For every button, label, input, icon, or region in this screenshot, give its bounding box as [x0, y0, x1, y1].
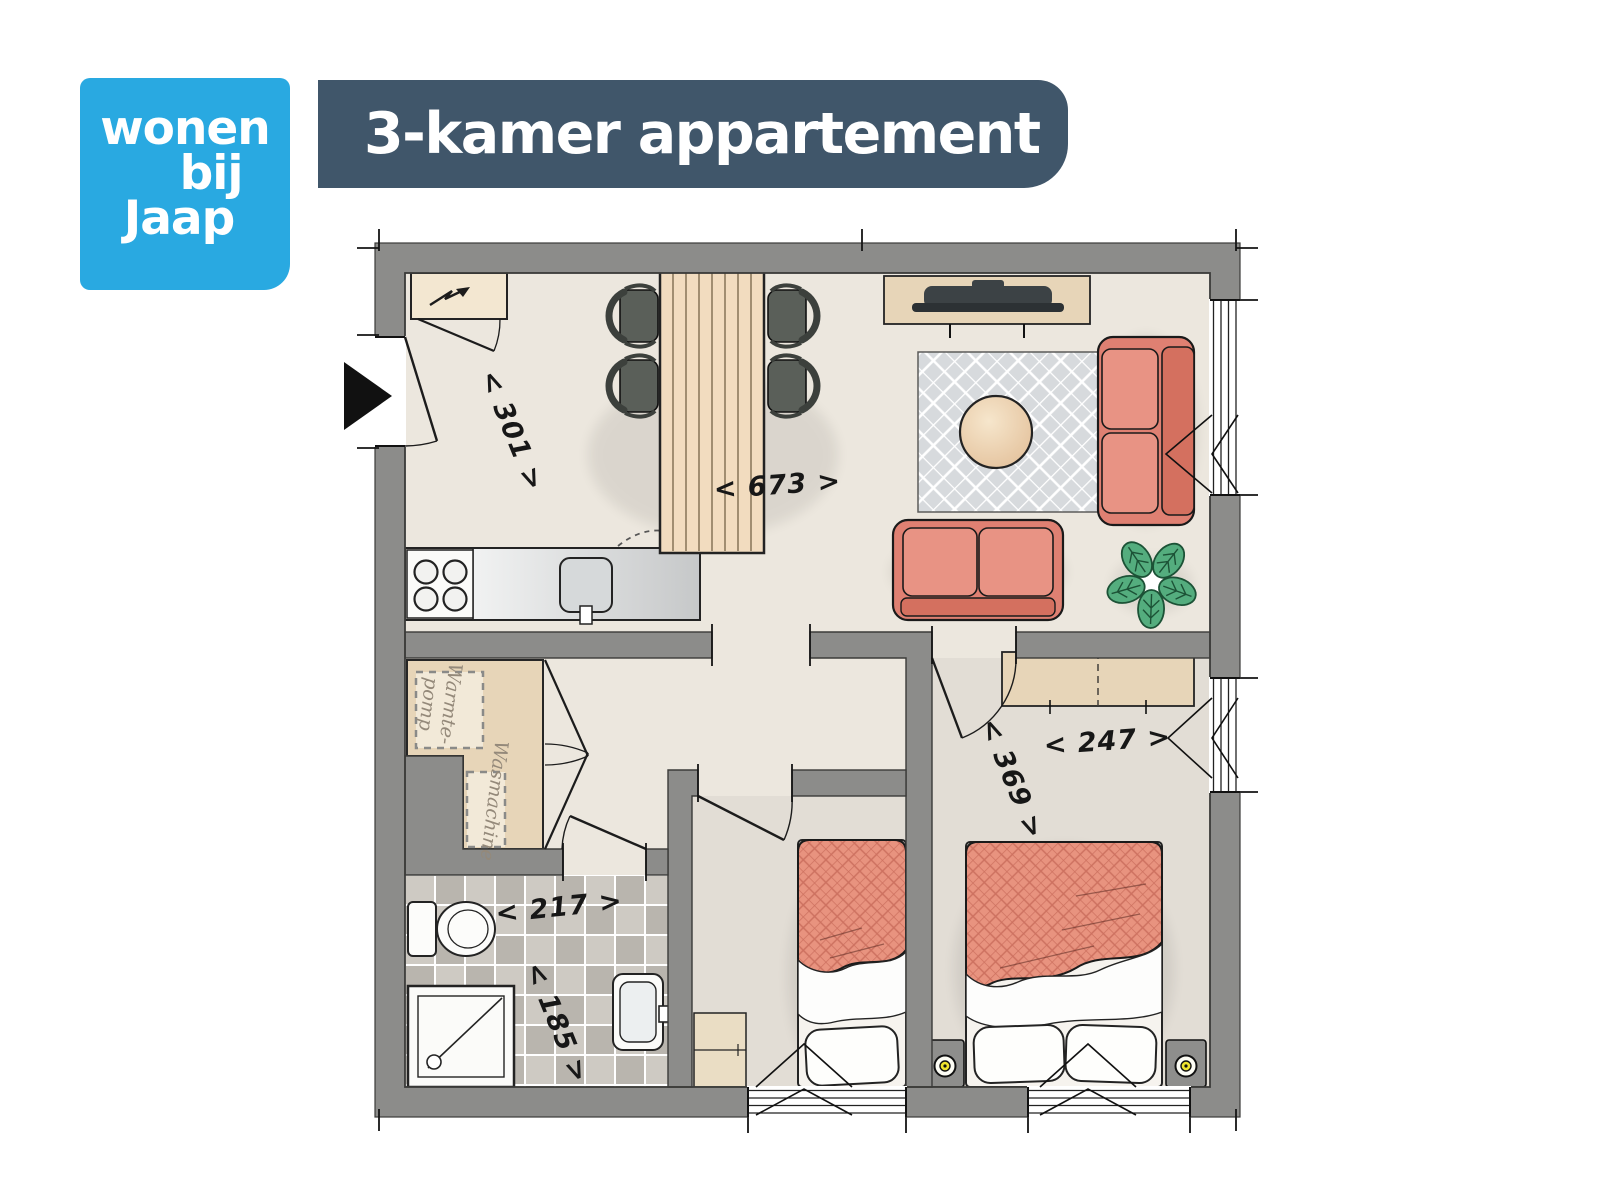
dresser	[694, 1013, 746, 1087]
pillow	[973, 1024, 1065, 1083]
pillow	[1065, 1024, 1157, 1083]
single-bed	[798, 840, 906, 1087]
toilet	[408, 902, 495, 956]
shower-drain	[427, 1055, 441, 1069]
nightstand-right	[1166, 1040, 1206, 1087]
dining-table	[660, 267, 764, 553]
sofa-main	[1098, 337, 1194, 525]
sink-faucet	[580, 606, 592, 624]
meter-cabinet	[411, 273, 507, 319]
sofa-small	[893, 520, 1063, 620]
wardrobe	[1002, 652, 1194, 714]
kitchen-sink	[560, 558, 612, 612]
page: wonen bij Jaap 3-kamer appartement	[0, 0, 1600, 1200]
wall-kitchen-hall	[405, 632, 712, 658]
pillow	[805, 1026, 900, 1087]
double-bed	[966, 842, 1162, 1087]
washbasin	[613, 974, 669, 1050]
shower-tray	[408, 986, 514, 1087]
floorplan: < 301 > < 673 > < 217 > < 185 > < 369 > …	[0, 0, 1600, 1200]
coffee-table	[960, 396, 1032, 468]
